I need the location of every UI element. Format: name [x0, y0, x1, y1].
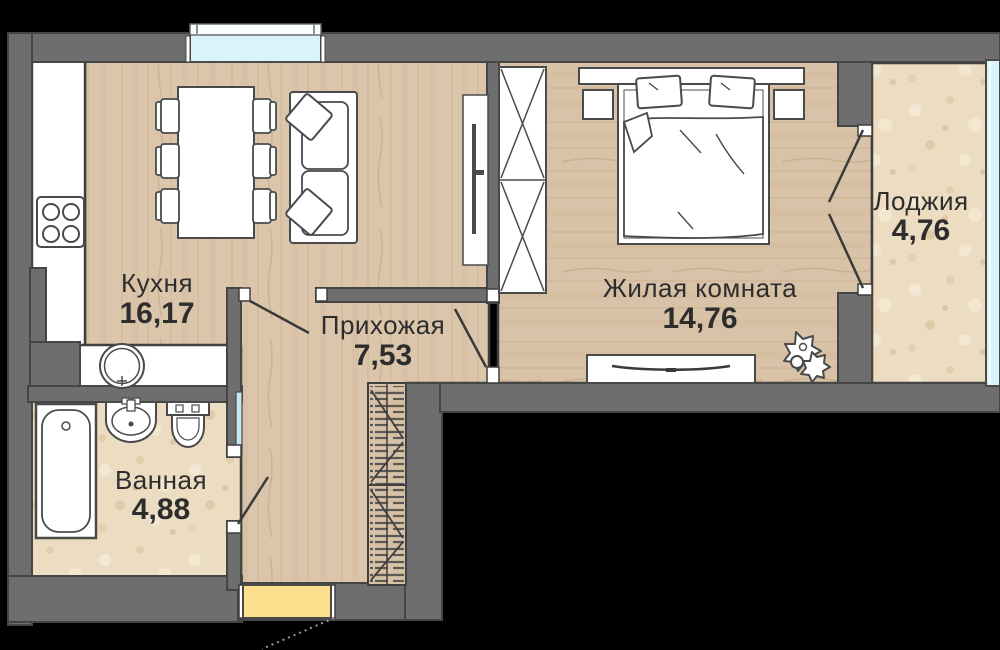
wall-left-step2	[30, 342, 80, 392]
chair	[156, 189, 179, 223]
tv-icon	[472, 124, 476, 234]
wall-bottom-left	[8, 576, 242, 622]
chair	[253, 99, 276, 133]
floor-plan-canvas: Кухня 16,17 Прихожая 7,53 Жилая комната …	[0, 0, 1000, 650]
wall-hall-top	[316, 288, 489, 302]
jamb	[487, 289, 499, 302]
chair	[156, 99, 179, 133]
sofa	[285, 92, 357, 243]
pillow	[709, 76, 755, 109]
wall-loggia-divider-bottom	[838, 293, 872, 383]
wall-south-right	[440, 383, 1000, 412]
washing-machine	[100, 344, 144, 388]
bathtub	[36, 404, 96, 538]
stove	[37, 197, 84, 247]
room-label-living: Жилая комната	[603, 273, 797, 303]
washbasin	[106, 398, 156, 442]
floor-plan-svg: Кухня 16,17 Прихожая 7,53 Жилая комната …	[0, 0, 1000, 650]
tv-stand	[587, 355, 755, 383]
wall-kitchen-living-divider	[487, 62, 499, 303]
dining-table	[178, 87, 254, 238]
room-label-loggia: Лоджия	[873, 186, 968, 216]
jamb	[316, 288, 327, 301]
room-area-kitchen: 16,17	[119, 297, 194, 330]
bed	[618, 76, 769, 244]
nightstand	[774, 90, 804, 119]
entrance-door-swing	[262, 618, 334, 649]
wall-top	[8, 33, 1000, 62]
jamb	[487, 367, 499, 383]
loggia-glazing	[986, 60, 1000, 386]
entrance-mat	[243, 585, 331, 618]
headboard-shelf	[579, 68, 804, 84]
chair	[156, 144, 179, 178]
wardrobe	[499, 67, 546, 293]
kitchen-tv-panel	[463, 95, 488, 265]
chair	[253, 189, 276, 223]
nightstand	[583, 90, 613, 119]
kitchen-window	[186, 24, 325, 62]
pillow	[636, 76, 682, 109]
jamb	[227, 445, 241, 457]
room-area-loggia: 4,76	[892, 214, 950, 247]
jamb	[858, 284, 872, 295]
room-label-hallway: Прихожая	[321, 310, 445, 340]
chair	[253, 144, 276, 178]
coat-rack	[368, 383, 406, 585]
room-area-living: 14,76	[662, 302, 737, 335]
wall-loggia-divider-top	[838, 62, 872, 126]
room-area-bathroom: 4,88	[132, 493, 190, 526]
room-area-hallway: 7,53	[354, 339, 412, 372]
room-label-bathroom: Ванная	[115, 465, 207, 495]
wall-hall-east	[405, 383, 442, 620]
room-label-kitchen: Кухня	[121, 268, 193, 298]
jamb	[239, 288, 250, 301]
wall-left	[8, 33, 32, 625]
